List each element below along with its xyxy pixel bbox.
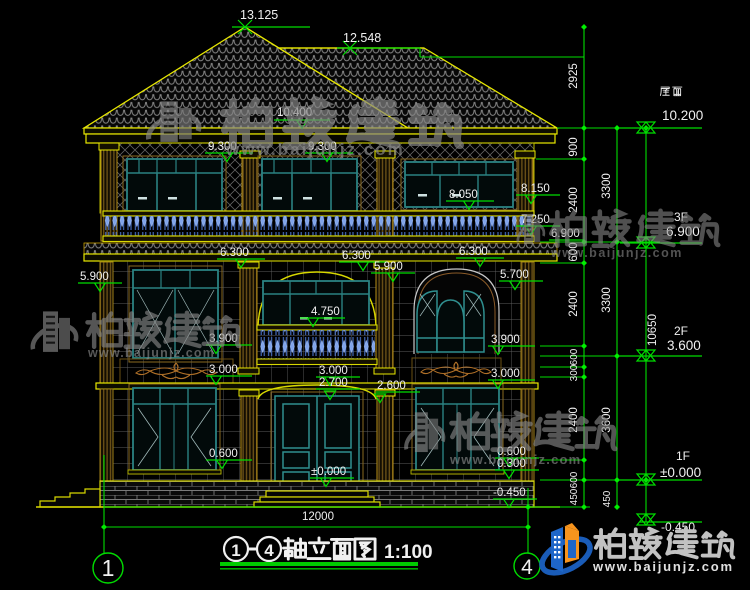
svg-text:4.750: 4.750 bbox=[311, 306, 340, 318]
svg-text:8.050: 8.050 bbox=[449, 189, 478, 201]
svg-text:450: 450 bbox=[569, 488, 580, 505]
svg-text:-0.450: -0.450 bbox=[493, 487, 526, 499]
svg-text:www.baijunjz.com: www.baijunjz.com bbox=[550, 246, 683, 260]
svg-text:1: 1 bbox=[102, 555, 115, 581]
svg-text:600: 600 bbox=[569, 471, 580, 488]
svg-text:6.300: 6.300 bbox=[459, 246, 488, 258]
svg-text:6.300: 6.300 bbox=[342, 250, 371, 262]
svg-text:10650: 10650 bbox=[647, 314, 659, 346]
svg-text:www.baijunjz.com: www.baijunjz.com bbox=[449, 452, 581, 467]
svg-text:3.600: 3.600 bbox=[667, 338, 701, 353]
svg-text:5.700: 5.700 bbox=[500, 269, 529, 281]
svg-text:2F: 2F bbox=[674, 324, 688, 338]
svg-text:2925: 2925 bbox=[568, 63, 580, 89]
svg-text:10.200: 10.200 bbox=[662, 108, 703, 123]
svg-text:0.600: 0.600 bbox=[209, 448, 238, 460]
svg-text:5.900: 5.900 bbox=[374, 261, 403, 273]
svg-text:12000: 12000 bbox=[302, 511, 334, 523]
svg-text:13.125: 13.125 bbox=[240, 8, 278, 22]
svg-text:8.150: 8.150 bbox=[521, 183, 550, 195]
svg-text:2400: 2400 bbox=[568, 291, 580, 317]
svg-text:±0.000: ±0.000 bbox=[660, 465, 701, 480]
svg-text:2.700: 2.700 bbox=[319, 377, 348, 389]
svg-text:2400: 2400 bbox=[568, 187, 580, 213]
svg-text:300: 300 bbox=[569, 364, 580, 381]
svg-text:3.000: 3.000 bbox=[319, 365, 348, 377]
svg-text:1:100: 1:100 bbox=[384, 542, 433, 563]
svg-text:4: 4 bbox=[264, 541, 274, 560]
svg-text:1: 1 bbox=[231, 541, 240, 560]
svg-text:600: 600 bbox=[569, 348, 580, 365]
svg-text:12.548: 12.548 bbox=[343, 31, 381, 45]
svg-text:3.900: 3.900 bbox=[491, 334, 520, 346]
svg-text:900: 900 bbox=[568, 137, 580, 156]
svg-text:450: 450 bbox=[602, 490, 613, 507]
svg-text:www.baijunjz.com: www.baijunjz.com bbox=[87, 346, 215, 360]
svg-text:2.600: 2.600 bbox=[377, 380, 406, 392]
svg-text:5.900: 5.900 bbox=[80, 271, 109, 283]
svg-text:www.baijunjz.com: www.baijunjz.com bbox=[225, 140, 405, 159]
svg-text:3.000: 3.000 bbox=[209, 364, 238, 376]
svg-text:3.000: 3.000 bbox=[491, 368, 520, 380]
svg-text:1F: 1F bbox=[676, 449, 690, 463]
svg-text:3300: 3300 bbox=[601, 287, 613, 313]
svg-text:4: 4 bbox=[521, 556, 533, 579]
svg-text:±0.000: ±0.000 bbox=[311, 466, 346, 478]
svg-text:3300: 3300 bbox=[601, 173, 613, 199]
svg-text:6.300: 6.300 bbox=[220, 247, 249, 259]
